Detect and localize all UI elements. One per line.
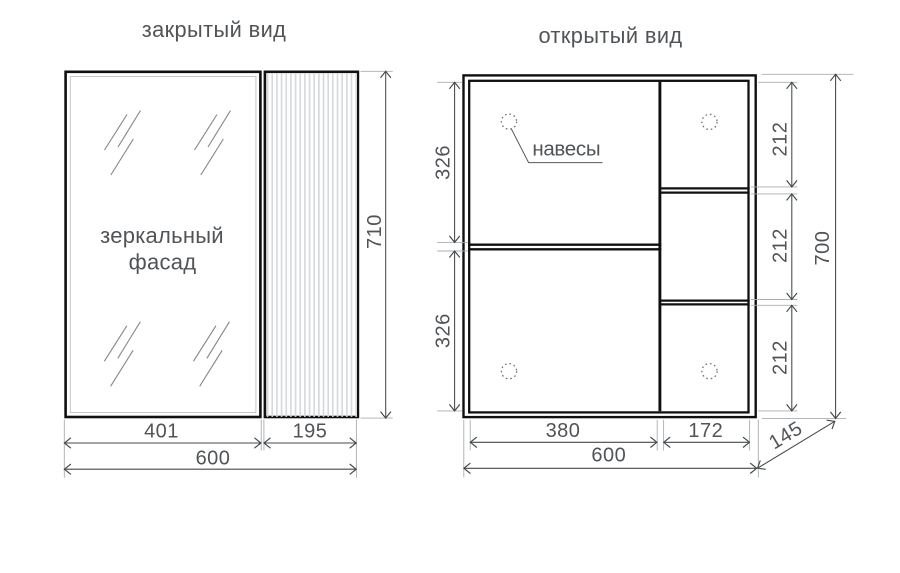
- svg-text:326: 326: [432, 145, 454, 180]
- svg-text:фасад: фасад: [129, 250, 197, 275]
- svg-text:600: 600: [196, 448, 231, 470]
- svg-text:600: 600: [591, 444, 626, 466]
- svg-text:326: 326: [432, 313, 454, 348]
- svg-text:195: 195: [293, 420, 328, 442]
- svg-text:380: 380: [546, 420, 581, 442]
- svg-text:навесы: навесы: [532, 137, 600, 160]
- svg-text:открытый вид: открытый вид: [538, 23, 682, 48]
- svg-text:700: 700: [812, 231, 834, 266]
- svg-text:212: 212: [769, 122, 791, 157]
- svg-text:710: 710: [364, 214, 386, 249]
- svg-text:212: 212: [769, 228, 791, 263]
- svg-text:212: 212: [769, 340, 791, 375]
- svg-text:401: 401: [144, 420, 179, 442]
- svg-text:172: 172: [688, 420, 723, 442]
- svg-text:зеркальный: зеркальный: [100, 223, 224, 248]
- svg-text:закрытый вид: закрытый вид: [142, 17, 287, 42]
